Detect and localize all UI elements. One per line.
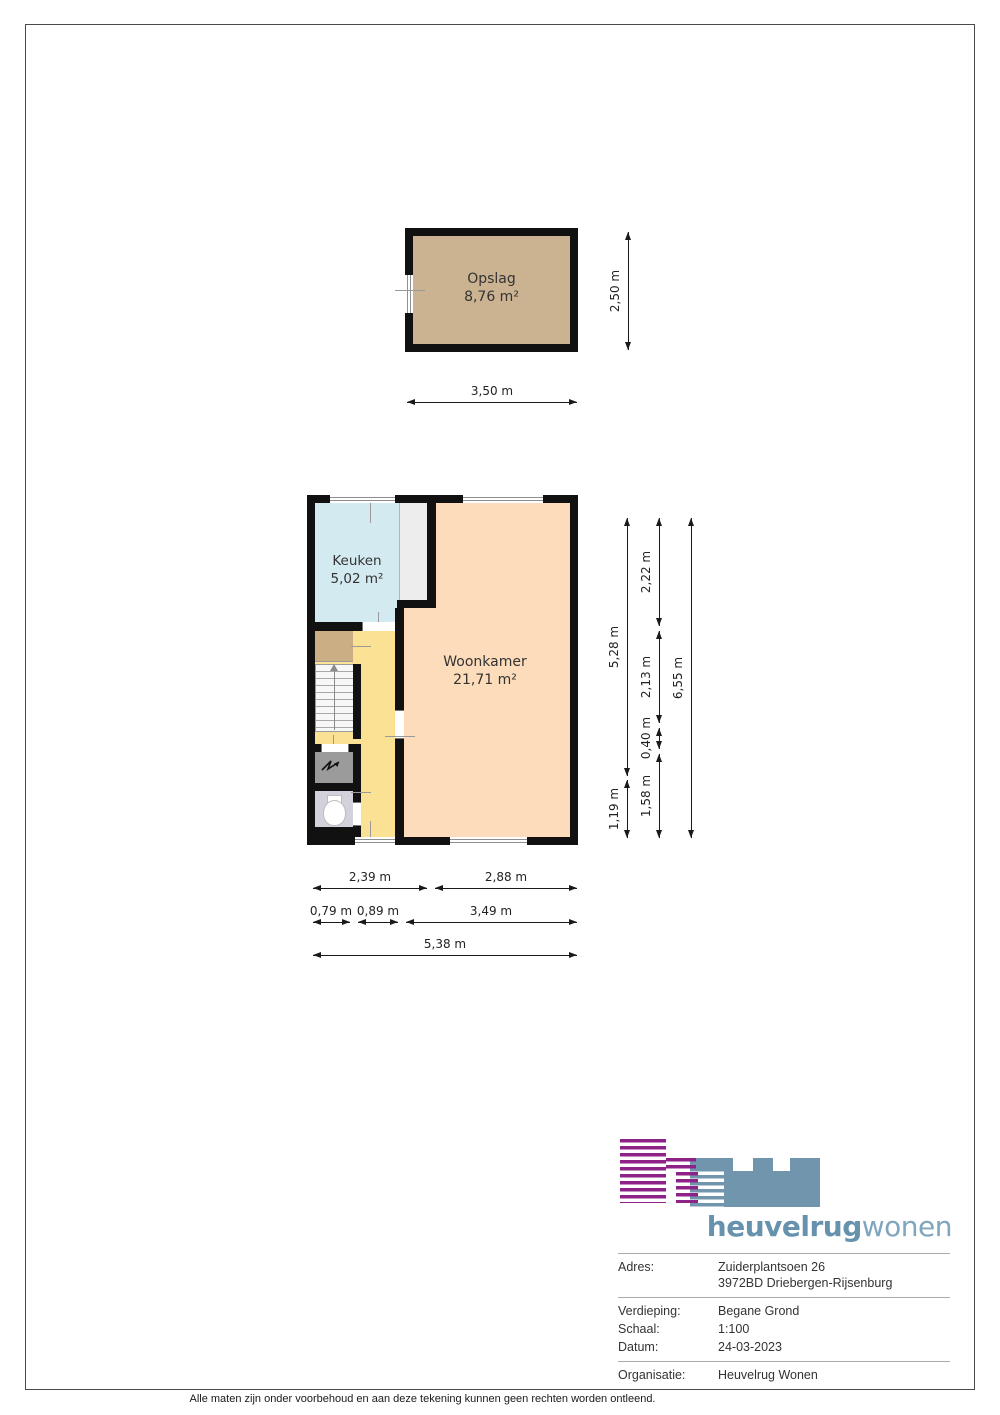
- adres-line1: Zuiderplantsoen 26: [718, 1259, 950, 1275]
- dim-line-gf-right-a: [659, 518, 660, 626]
- dim-line-gf-right-b: [659, 631, 660, 723]
- dim-label-gf-right-total: 6,55 m: [671, 657, 685, 699]
- dim-label-gf-bottom-total: 5,38 m: [424, 937, 466, 951]
- dim-line-gf-bottom-r1b: [435, 888, 577, 889]
- info-section-adres: Adres: Zuiderplantsoen 26 3972BD Drieber…: [618, 1253, 950, 1297]
- info-label: Adres:: [618, 1259, 718, 1291]
- meter-closet-door: [321, 744, 349, 752]
- stairs: [315, 664, 355, 732]
- dim-line-gf-bottom-total: [313, 955, 577, 956]
- dim-label-gf-right-b: 2,13 m: [639, 656, 653, 698]
- info-value: Begane Grond: [718, 1303, 950, 1319]
- kitchen-door: [362, 622, 397, 631]
- dim-label-storage-height: 2,50 m: [608, 270, 622, 312]
- dim-line-gf-bottom-r2a: [313, 922, 350, 923]
- room-area: 8,76 m²: [413, 288, 570, 306]
- room-area: 21,71 m²: [415, 671, 555, 689]
- dim-line-gf-right-c: [659, 728, 660, 749]
- kitchen-window: [330, 495, 395, 503]
- dim-line-gf-bottom-r2c: [406, 922, 577, 923]
- dim-line-gf-bottom-r1a: [313, 888, 427, 889]
- floorplan-page: Opslag 8,76 m² 2,50 m 3,50 m: [0, 0, 1000, 1415]
- duct-shaft: [399, 503, 428, 600]
- logo-castle-icon: [690, 1158, 820, 1207]
- duct-bottom-wall: [397, 600, 436, 608]
- storage-door-window: [405, 272, 413, 316]
- stairs-wall: [353, 664, 361, 739]
- front-door: [355, 837, 395, 845]
- dim-line-gf-right-upper: [627, 518, 628, 776]
- adres-line2: 3972BD Driebergen-Rijsenburg: [718, 1275, 950, 1291]
- info-section-organisatie: Organisatie: Heuvelrug Wonen: [618, 1361, 950, 1389]
- dim-label-gf-bottom-r2b: 0,89 m: [357, 904, 399, 918]
- room-label-keuken: Keuken 5,02 m²: [315, 553, 399, 588]
- closet-door-tick: [351, 646, 371, 647]
- dim-label-storage-width: 3,50 m: [471, 384, 513, 398]
- info-table: Adres: Zuiderplantsoen 26 3972BD Drieber…: [618, 1253, 950, 1389]
- info-value: Heuvelrug Wonen: [718, 1367, 950, 1383]
- dim-label-gf-bottom-r1a: 2,39 m: [349, 870, 391, 884]
- logo-hill-stripes-icon: [676, 1172, 698, 1203]
- dim-label-gf-right-d: 1,58 m: [639, 775, 653, 817]
- living-door: [395, 710, 404, 739]
- dim-line-gf-right-d: [659, 754, 660, 838]
- info-value: Zuiderplantsoen 26 3972BD Driebergen-Rij…: [718, 1259, 950, 1291]
- logo-hill-stripes-icon: [666, 1158, 696, 1172]
- info-value: 24-03-2023: [718, 1339, 950, 1355]
- info-label: Datum:: [618, 1339, 718, 1355]
- dim-label-gf-bottom-r1b: 2,88 m: [485, 870, 527, 884]
- duct-right-wall: [427, 495, 436, 608]
- dim-line-storage-width: [407, 402, 577, 403]
- toilet-right-wall: [353, 744, 361, 845]
- dim-line-gf-right-total: [691, 518, 692, 838]
- stairs-direction-line: [334, 671, 335, 730]
- living-door-tick: [385, 736, 415, 737]
- living-window-bottom: [450, 837, 527, 845]
- castle-notch: [733, 1158, 753, 1171]
- toilet-door: [353, 802, 361, 826]
- dim-label-gf-right-lower: 1,19 m: [607, 788, 621, 830]
- meter-closet: [315, 752, 353, 783]
- logo-wordmark: heuvelrugwonen: [620, 1210, 952, 1243]
- stairs-up-arrow-icon: [330, 664, 338, 671]
- logo-brand-light: wonen: [862, 1210, 952, 1243]
- dim-label-gf-bottom-r2c: 3,49 m: [470, 904, 512, 918]
- disclaimer-text: Alle maten zijn onder voorbehoud en aan …: [25, 1393, 820, 1405]
- dim-line-gf-right-lower: [627, 780, 628, 838]
- logo-brand-bold: heuvelrug: [707, 1210, 862, 1243]
- info-label: Organisatie:: [618, 1367, 718, 1383]
- dim-line-storage-height: [628, 232, 629, 350]
- dim-label-gf-right-c: 0,40 m: [639, 717, 653, 759]
- info-value: 1:100: [718, 1321, 950, 1337]
- storage-closet: [315, 631, 353, 662]
- room-label-opslag: Opslag 8,76 m²: [413, 270, 570, 306]
- castle-notch: [773, 1158, 790, 1171]
- room-name: Woonkamer: [415, 653, 555, 671]
- info-label: Schaal:: [618, 1321, 718, 1337]
- living-window-top: [463, 495, 543, 503]
- dim-label-gf-bottom-r2a: 0,79 m: [310, 904, 352, 918]
- info-section-details: Verdieping: Begane Grond Schaal: 1:100 D…: [618, 1297, 950, 1361]
- meter-door-tick: [333, 735, 334, 744]
- info-label: Verdieping:: [618, 1303, 718, 1319]
- ground-floor-plan: Keuken 5,02 m² Woonkamer 21,71 m²: [307, 495, 578, 845]
- storage-plan: Opslag 8,76 m²: [405, 228, 578, 352]
- dim-line-gf-bottom-r2b: [358, 922, 398, 923]
- room-woonkamer-ext: [404, 608, 435, 837]
- kitchen-door-tick: [378, 612, 379, 622]
- logo-hill-stripes-icon: [620, 1139, 666, 1203]
- dim-label-gf-right-upper: 5,28 m: [607, 626, 621, 668]
- front-door-tick: [370, 821, 371, 837]
- room-name: Keuken: [315, 553, 399, 571]
- toilet-icon: [323, 800, 346, 826]
- room-name: Opslag: [413, 270, 570, 288]
- room-label-woonkamer: Woonkamer 21,71 m²: [415, 653, 555, 689]
- kitchen-window-tick: [370, 503, 371, 523]
- toilet-door-tick: [351, 792, 371, 793]
- dim-label-gf-right-a: 2,22 m: [639, 551, 653, 593]
- lightning-icon: [320, 758, 348, 776]
- room-area: 5,02 m²: [315, 571, 399, 589]
